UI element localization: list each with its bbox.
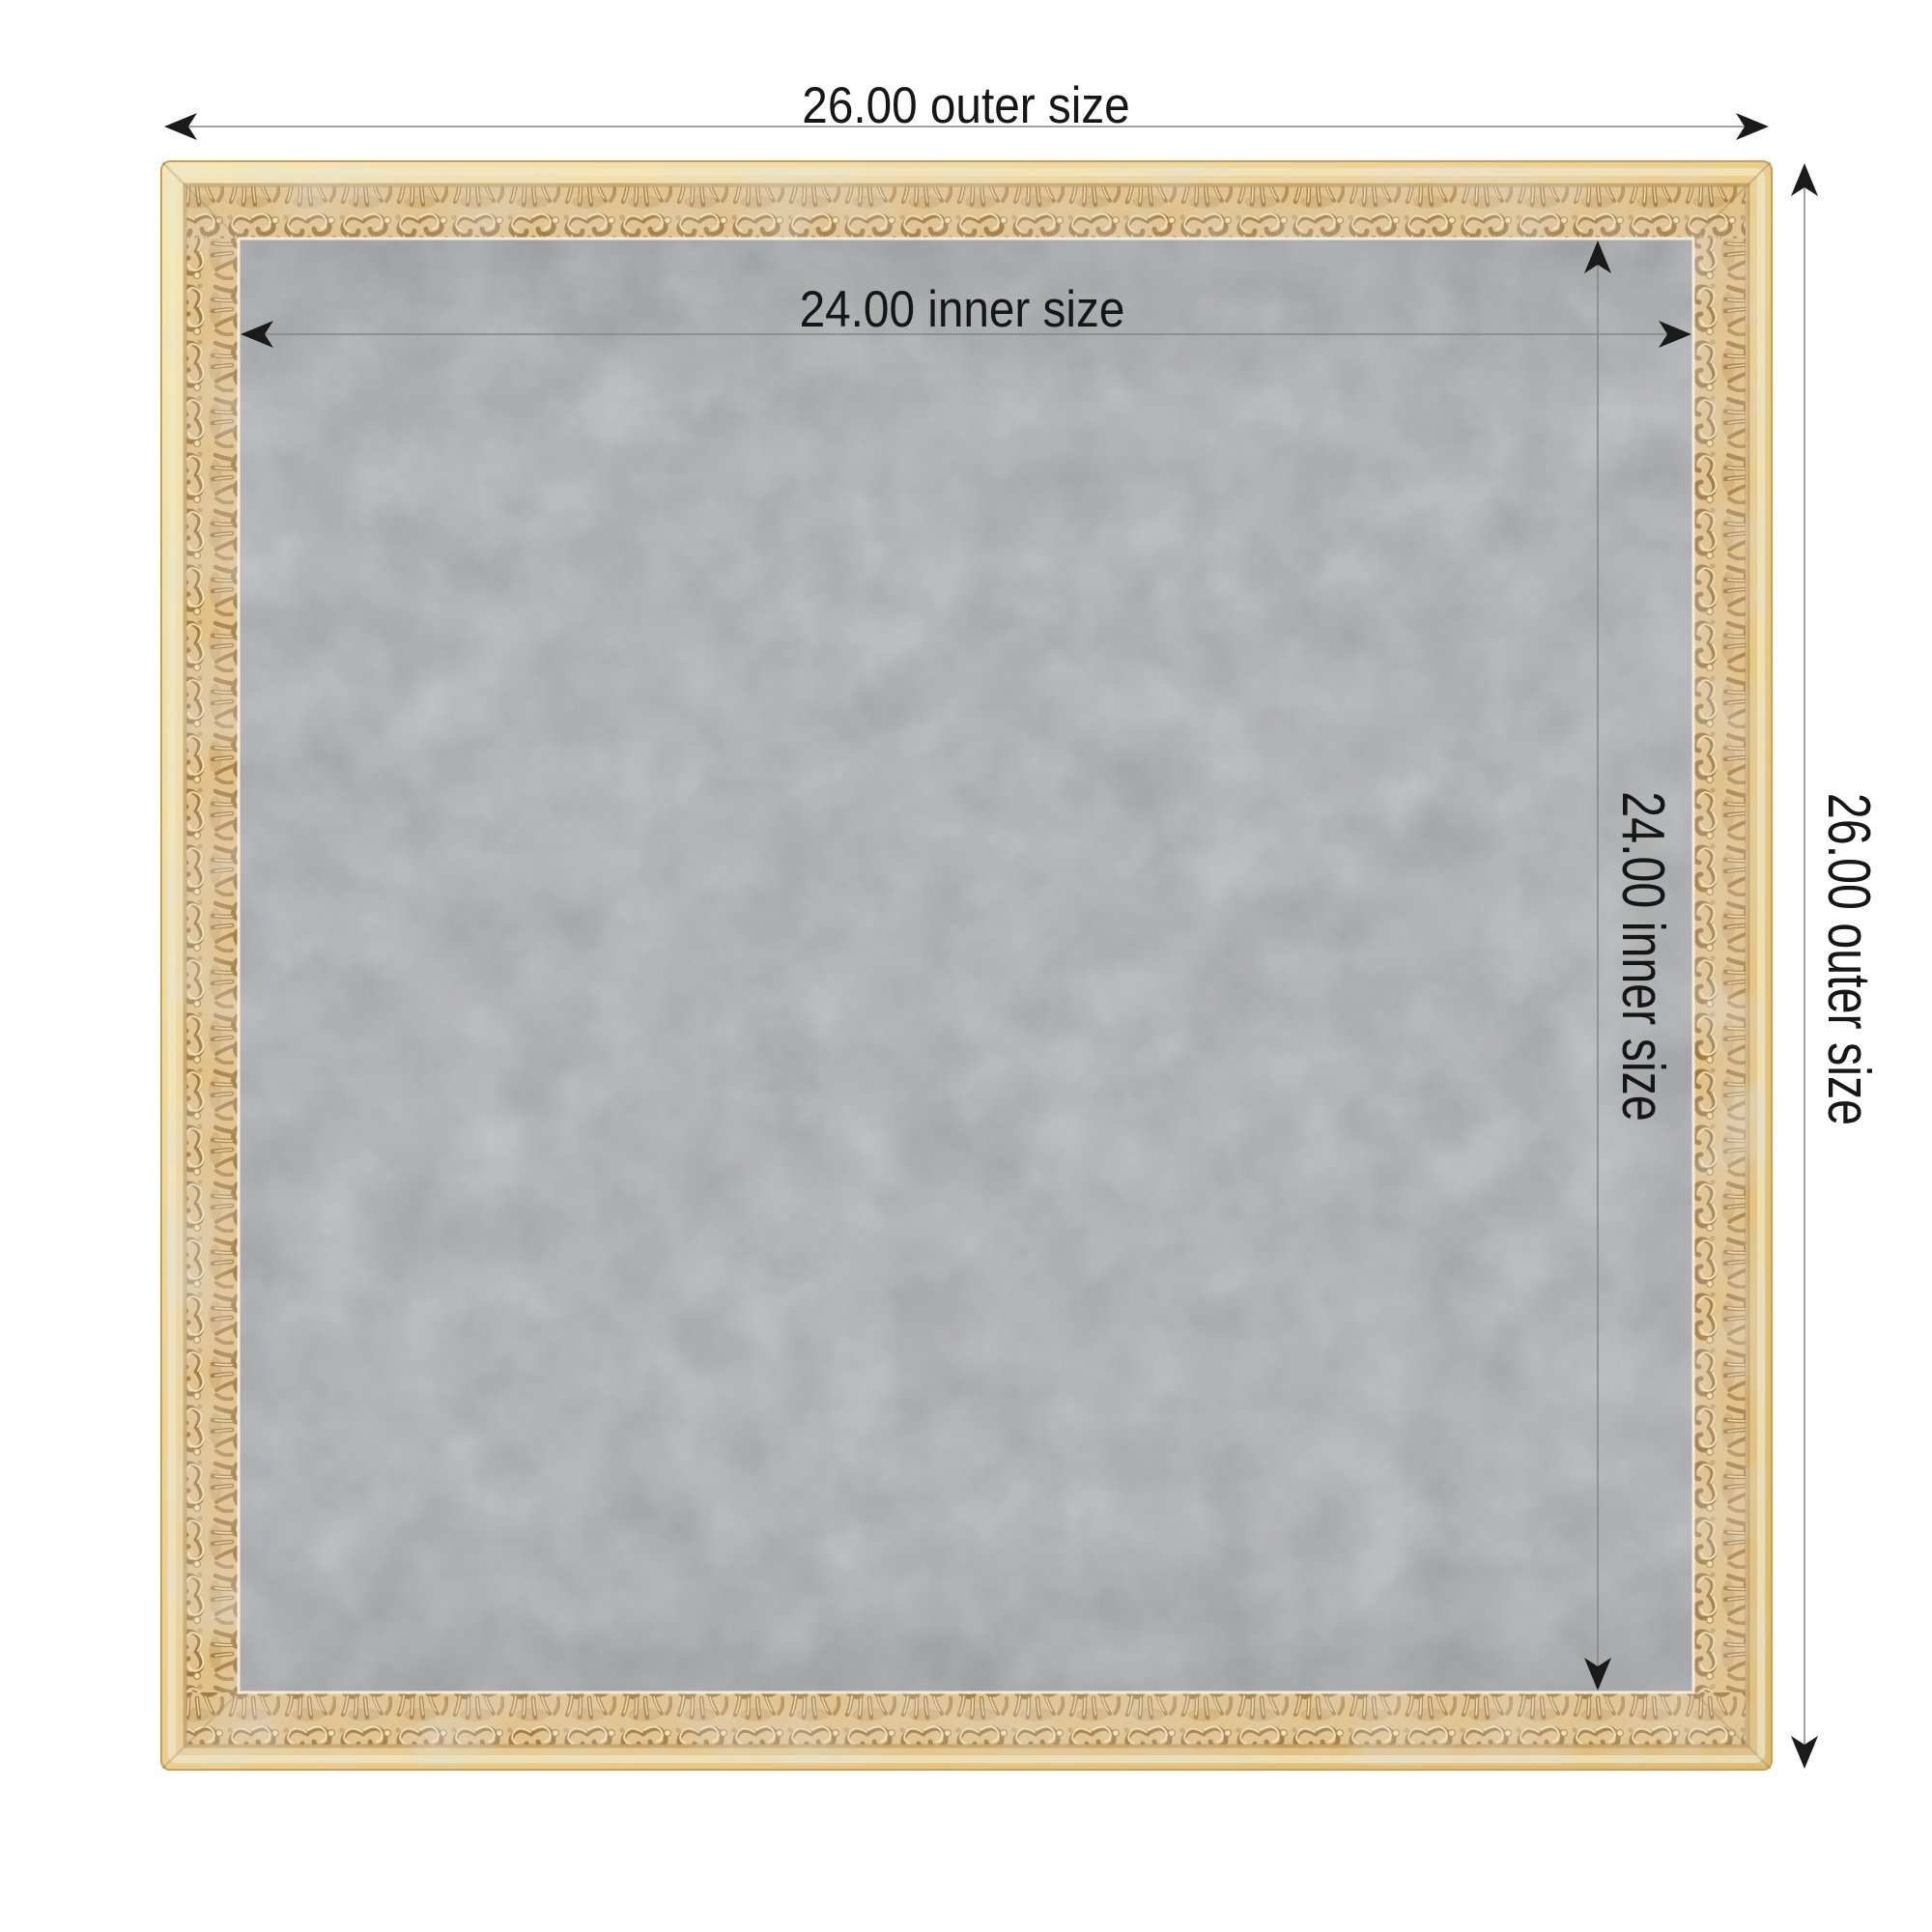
board-shading bbox=[239, 239, 1693, 1692]
outer-width-label: 26.00 outer size bbox=[802, 80, 1129, 131]
frame-size-diagram: 26.00 outer size 24.00 inner size 26.00 … bbox=[0, 0, 1932, 1932]
inner-height-label: 24.00 inner size bbox=[1612, 791, 1672, 1121]
outer-height-label: 26.00 outer size bbox=[1818, 793, 1878, 1125]
inner-width-label: 24.00 inner size bbox=[800, 284, 1125, 335]
frame-preview bbox=[161, 161, 1772, 1770]
